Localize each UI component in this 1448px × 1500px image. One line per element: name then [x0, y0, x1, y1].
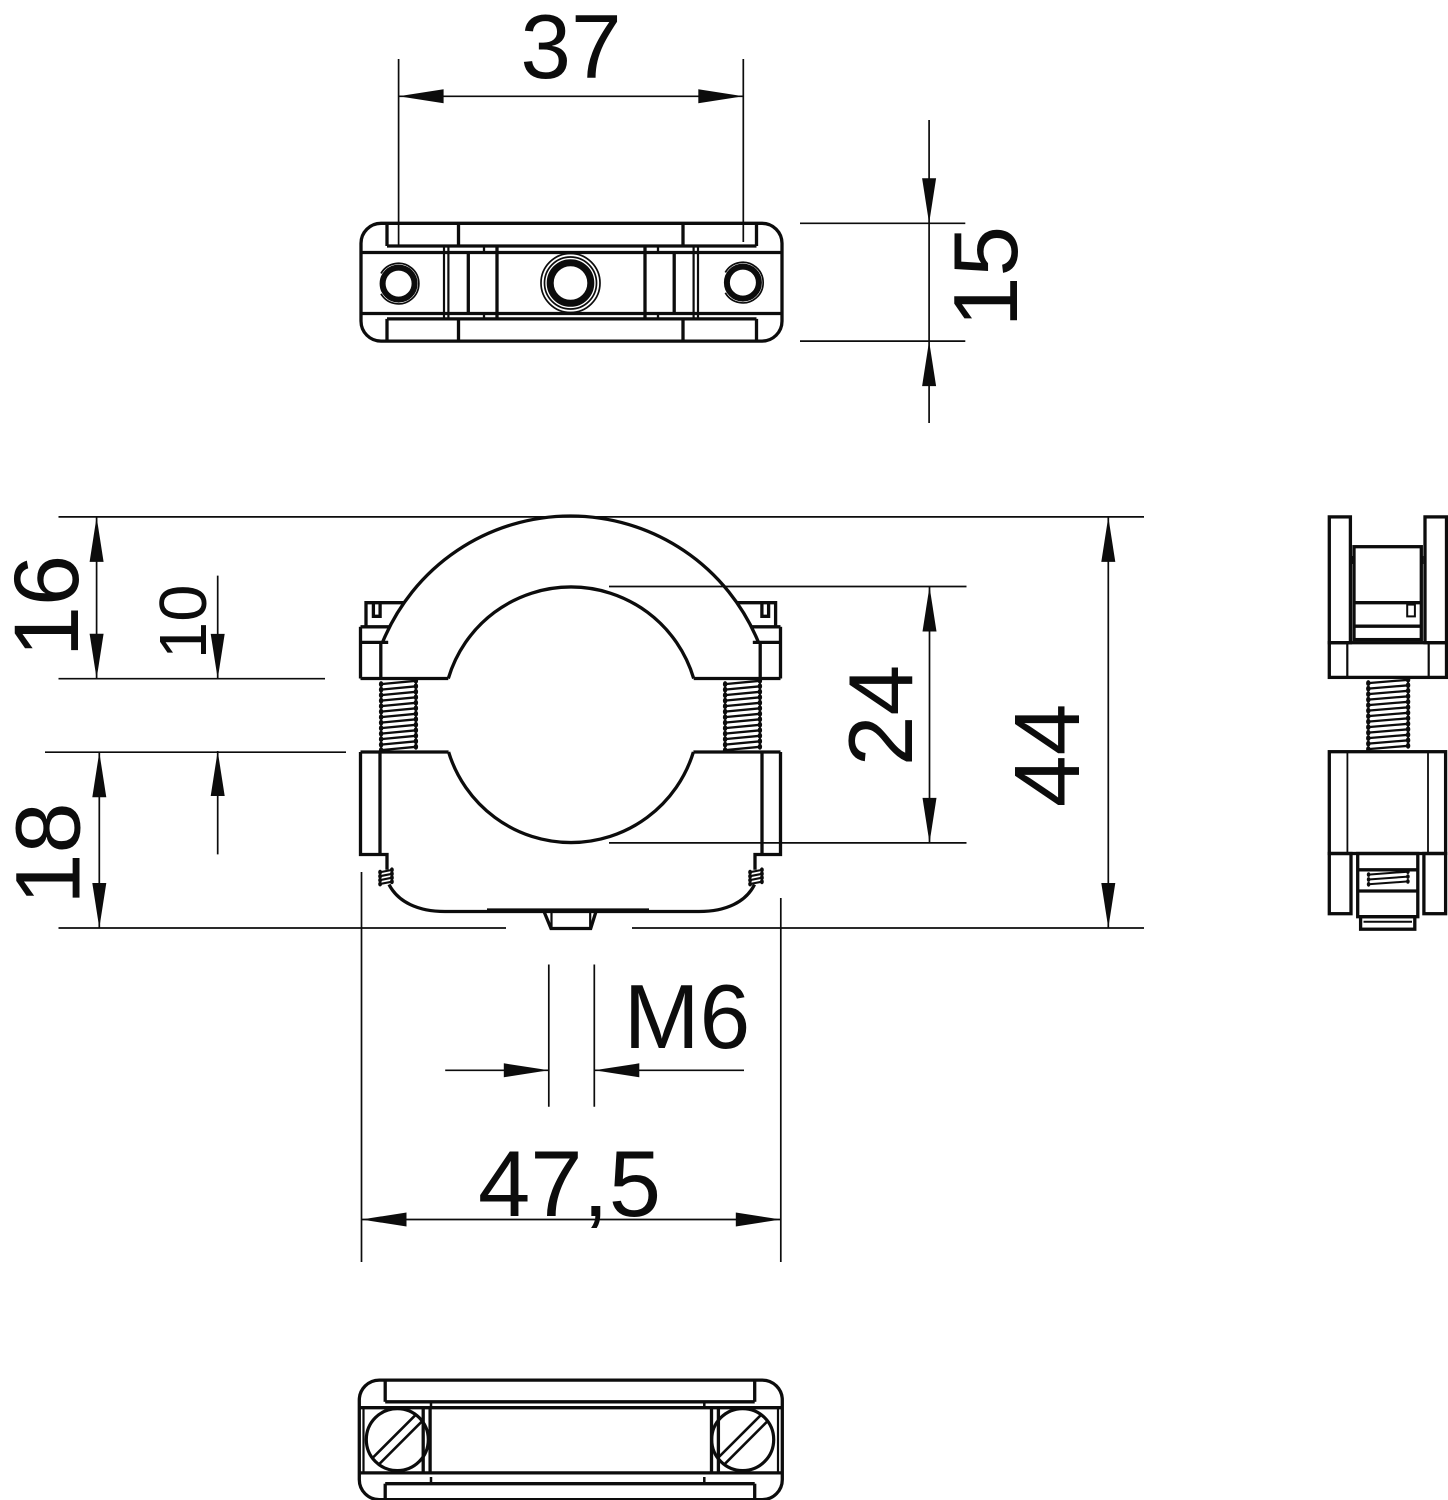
svg-text:18: 18	[0, 802, 100, 904]
svg-text:47,5: 47,5	[478, 1131, 661, 1236]
svg-text:44: 44	[995, 704, 1099, 807]
svg-text:15: 15	[936, 226, 1037, 327]
svg-text:24: 24	[831, 665, 932, 766]
svg-text:16: 16	[0, 555, 98, 657]
svg-text:37: 37	[520, 0, 621, 98]
svg-text:10: 10	[146, 585, 221, 660]
svg-text:M6: M6	[624, 967, 750, 1068]
